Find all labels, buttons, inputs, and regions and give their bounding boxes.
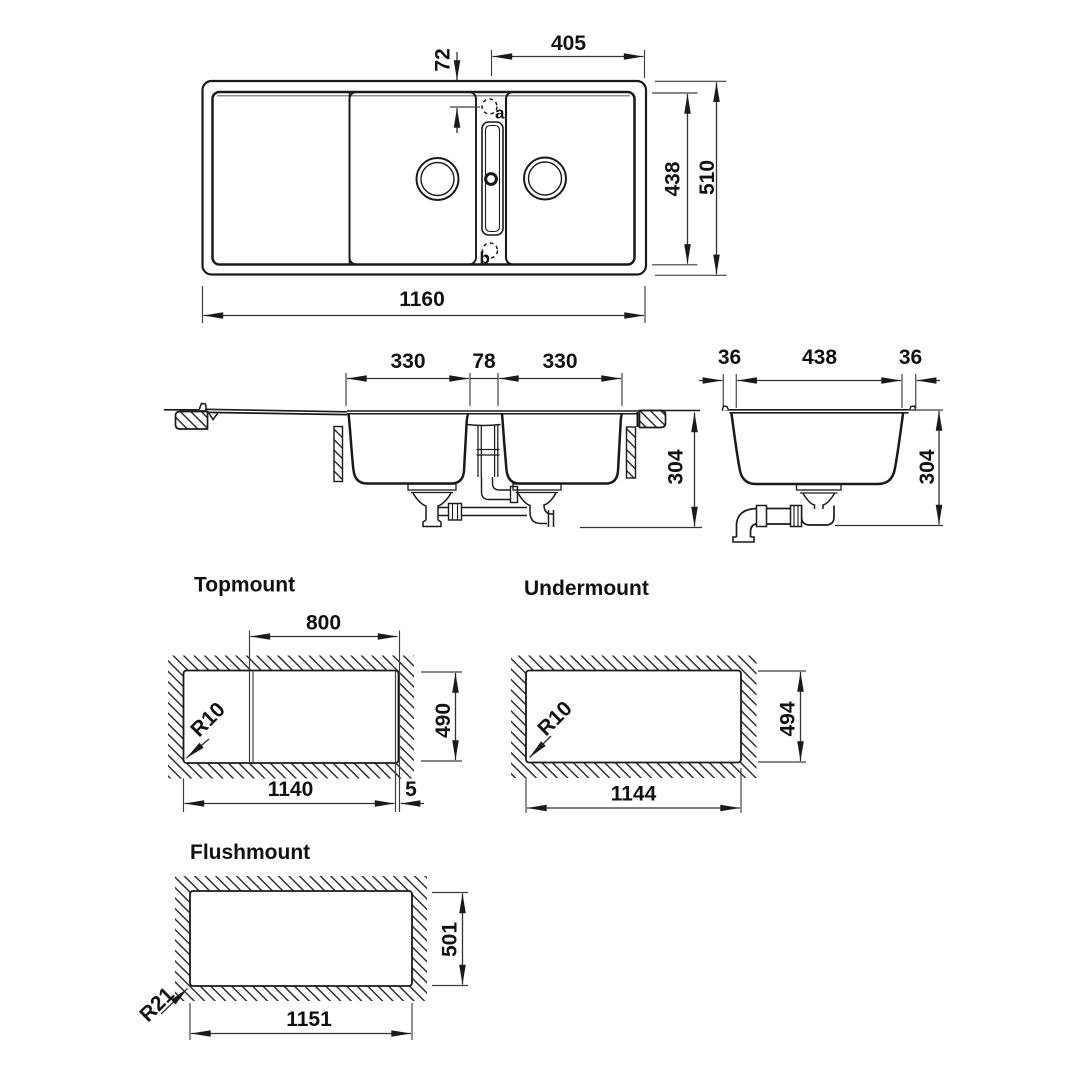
svg-text:72: 72 xyxy=(432,48,455,71)
svg-text:Undermount: Undermount xyxy=(524,577,649,600)
svg-text:304: 304 xyxy=(665,449,688,484)
svg-text:36: 36 xyxy=(899,346,922,369)
svg-text:800: 800 xyxy=(306,612,341,635)
svg-text:5: 5 xyxy=(405,778,417,801)
svg-text:438: 438 xyxy=(662,161,685,196)
svg-text:494: 494 xyxy=(777,701,800,736)
svg-text:510: 510 xyxy=(696,160,719,195)
svg-text:405: 405 xyxy=(551,32,586,55)
svg-text:304: 304 xyxy=(916,449,939,484)
svg-text:b: b xyxy=(480,249,490,268)
svg-text:438: 438 xyxy=(802,346,837,369)
svg-text:a: a xyxy=(495,104,505,123)
svg-text:1140: 1140 xyxy=(268,778,314,801)
svg-text:36: 36 xyxy=(718,346,741,369)
svg-text:78: 78 xyxy=(472,350,496,373)
svg-text:Flushmount: Flushmount xyxy=(190,841,310,864)
svg-text:490: 490 xyxy=(432,703,455,738)
svg-text:Topmount: Topmount xyxy=(194,574,295,597)
svg-text:330: 330 xyxy=(542,350,577,373)
svg-text:330: 330 xyxy=(390,350,425,373)
svg-text:R21: R21 xyxy=(135,983,179,1027)
svg-text:501: 501 xyxy=(439,922,462,957)
svg-text:1144: 1144 xyxy=(611,783,657,806)
svg-text:1160: 1160 xyxy=(399,288,445,311)
svg-text:1151: 1151 xyxy=(286,1008,332,1031)
